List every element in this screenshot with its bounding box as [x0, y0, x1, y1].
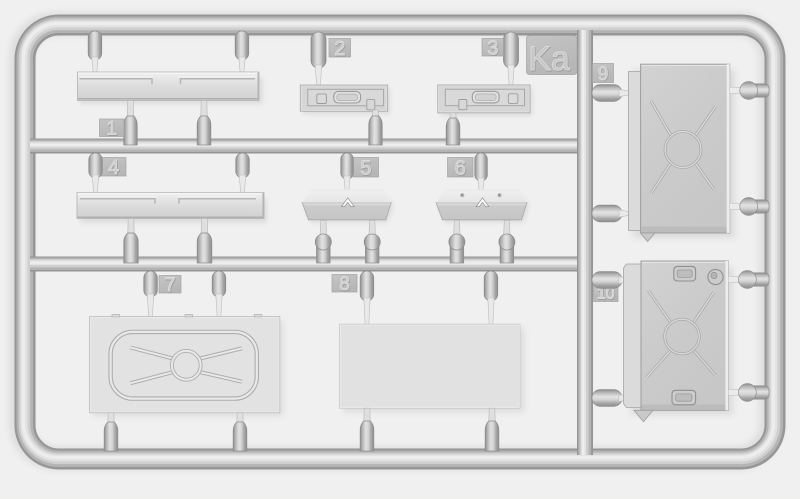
svg-text:2: 2 — [334, 38, 345, 60]
svg-text:Ka: Ka — [528, 40, 570, 78]
svg-text:3: 3 — [487, 38, 498, 60]
svg-text:1: 1 — [107, 119, 118, 140]
svg-text:6: 6 — [455, 157, 466, 179]
svg-text:8: 8 — [339, 274, 350, 295]
svg-text:9: 9 — [598, 64, 609, 85]
svg-text:7: 7 — [165, 275, 176, 296]
svg-text:4: 4 — [108, 157, 119, 179]
svg-text:5: 5 — [360, 157, 371, 179]
